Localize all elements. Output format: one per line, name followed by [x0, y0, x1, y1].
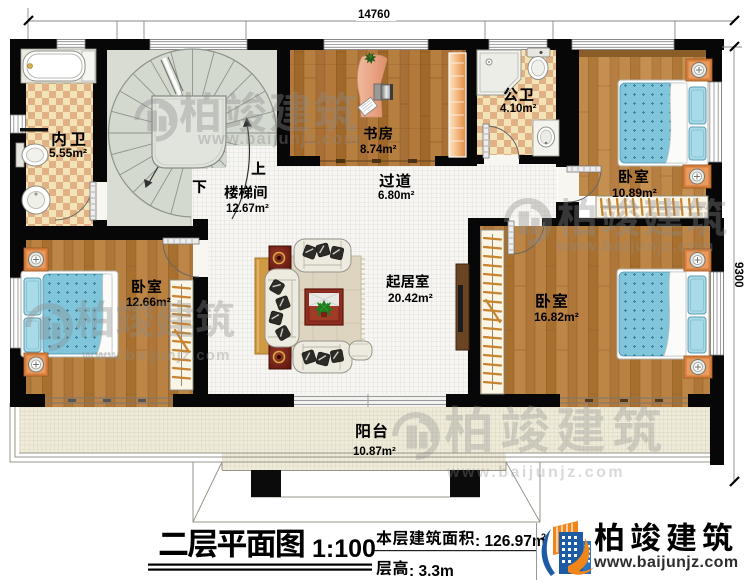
svg-text:: 3.3m: : 3.3m [409, 563, 454, 580]
svg-text:5.55m²: 5.55m² [49, 146, 87, 160]
svg-text:10.87m²: 10.87m² [353, 446, 396, 458]
svg-text:www.baijunjz.com: www.baijunjz.com [593, 554, 739, 571]
svg-text:9300: 9300 [732, 262, 744, 288]
svg-text:www.baijunjz.com: www.baijunjz.com [81, 347, 231, 364]
svg-text:8.74m²: 8.74m² [360, 144, 397, 156]
svg-text:www.baijunjz.com: www.baijunjz.com [556, 238, 715, 255]
svg-text:1:100: 1:100 [312, 535, 376, 563]
svg-text:www.baijunjz.com: www.baijunjz.com [197, 130, 360, 148]
svg-text:12.67m²: 12.67m² [226, 203, 269, 215]
svg-text:14760: 14760 [358, 9, 390, 21]
svg-text:www.baijunjz.com: www.baijunjz.com [446, 464, 625, 481]
svg-text:16.82m²: 16.82m² [534, 310, 579, 324]
svg-text:6.80m²: 6.80m² [378, 190, 415, 202]
svg-text:20.42m²: 20.42m² [388, 291, 433, 305]
svg-text:4.10m²: 4.10m² [500, 103, 537, 115]
svg-text:10.89m²: 10.89m² [612, 186, 657, 200]
svg-text:: 126.97m: : 126.97m [475, 533, 546, 550]
